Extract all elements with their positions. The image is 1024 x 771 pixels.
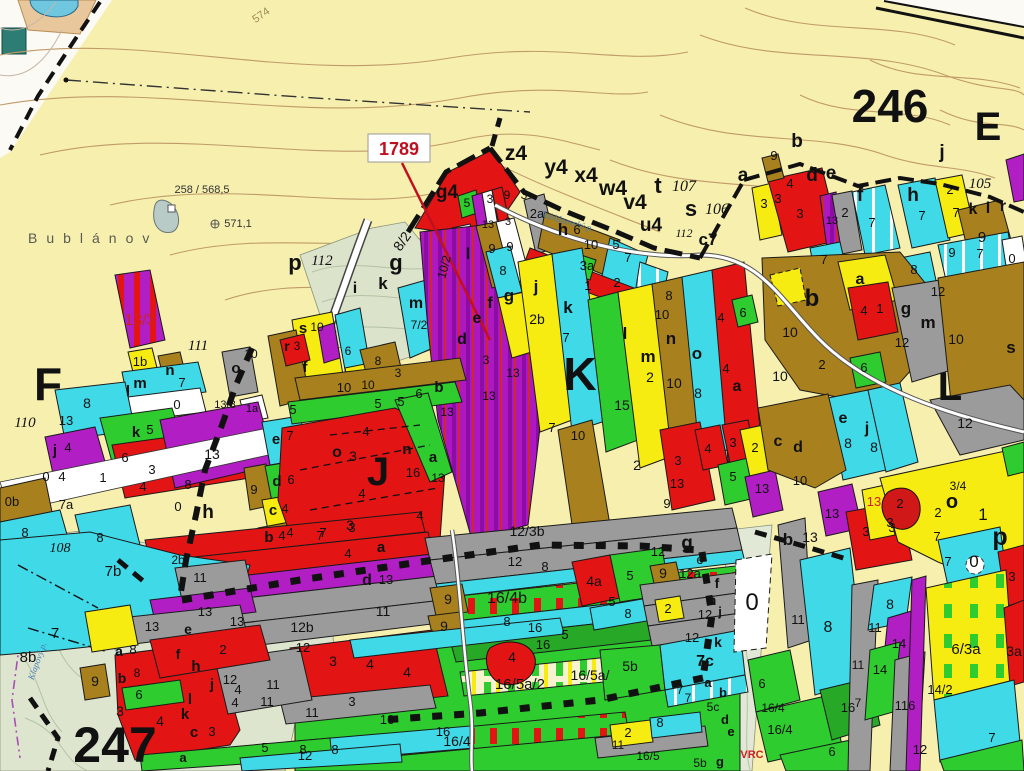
- map-label: 13: [440, 405, 454, 419]
- map-symbol-square: [2, 28, 26, 54]
- map-label: 9: [659, 565, 667, 581]
- map-label: 9: [250, 482, 257, 497]
- place-name: Bublánov: [28, 230, 158, 246]
- map-label: 1: [99, 470, 106, 485]
- map-label: 5: [146, 422, 153, 437]
- map-label: 6: [415, 386, 422, 401]
- map-label: 4: [860, 303, 867, 318]
- map-label: 12: [957, 415, 973, 431]
- map-label: d: [457, 331, 467, 348]
- map-label: 12b: [290, 619, 314, 635]
- map-label: 8: [694, 385, 702, 401]
- map-label: 4: [717, 310, 724, 325]
- map-label: i: [353, 280, 357, 297]
- map-label: 8: [844, 435, 852, 451]
- map-label: 13: [825, 506, 839, 521]
- map-label: 12: [651, 544, 665, 559]
- map-label: n: [666, 329, 676, 348]
- map-label: 3a: [580, 258, 595, 273]
- map-label: 2: [751, 440, 758, 455]
- map-label: 4: [156, 713, 164, 729]
- map-label: g4: [436, 182, 459, 203]
- map-label: 5: [729, 469, 736, 484]
- map-label: 13: [482, 389, 496, 403]
- map-label: 1: [978, 505, 987, 524]
- map-viewport[interactable]: 246E247FJKL1789Bublánov258 / 568,5571,15…: [0, 0, 1024, 771]
- map-label: 13: [204, 446, 220, 462]
- map-label: 7: [868, 215, 875, 230]
- map-label: 4: [722, 361, 729, 376]
- map-label: b: [264, 529, 273, 546]
- map-label: 1b: [133, 354, 147, 369]
- map-label: 10: [244, 347, 258, 361]
- map-label: 2: [219, 642, 226, 657]
- map-label: 7b: [105, 563, 122, 580]
- map-label: j: [717, 604, 722, 619]
- map-label: 5b: [622, 658, 638, 674]
- map-label: l: [623, 324, 628, 343]
- map-label: j: [938, 142, 944, 163]
- map-label: 13: [230, 614, 244, 629]
- map-label: 12: [508, 554, 522, 569]
- map-label: 3: [294, 339, 301, 353]
- map-label: 12a: [679, 566, 701, 581]
- map-label: 0: [173, 397, 180, 412]
- map-label: 4: [58, 469, 65, 484]
- map-label: c: [269, 502, 277, 519]
- map-label: c: [774, 433, 783, 450]
- map-label: 10: [948, 331, 964, 347]
- map-label: 12: [298, 748, 312, 763]
- map-label: 1: [584, 278, 591, 293]
- compartment-letter-K: K: [563, 348, 596, 400]
- map-label: 5b: [693, 756, 707, 770]
- map-label: e: [272, 431, 280, 448]
- map-label: 3: [148, 462, 155, 477]
- map-label: a: [179, 750, 187, 765]
- map-label: 10: [772, 368, 788, 384]
- map-label: 11: [852, 658, 865, 672]
- map-label: 10: [782, 324, 798, 340]
- map-label: 16/5: [636, 749, 660, 763]
- map-label: b: [434, 379, 443, 396]
- map-label: h: [558, 220, 568, 239]
- map-label: j: [533, 277, 539, 296]
- map-label: 5c: [707, 700, 720, 714]
- map-label: 13: [506, 366, 520, 380]
- map-label: a: [733, 378, 742, 395]
- map-label: 3: [349, 448, 357, 464]
- map-label: l: [466, 246, 470, 263]
- map-label: n: [402, 441, 411, 458]
- map-label: 2: [818, 357, 825, 372]
- map-label: 111: [188, 338, 208, 354]
- map-label: g: [504, 286, 514, 305]
- pond-symbol: [168, 205, 175, 212]
- map-label: 6: [135, 687, 142, 702]
- map-label: 2: [664, 601, 671, 616]
- compartment-letter-J: J: [367, 450, 389, 494]
- map-label: 3: [329, 653, 337, 669]
- map-label: 8: [656, 715, 663, 730]
- map-label: 4: [231, 695, 238, 710]
- map-label: 13: [826, 215, 838, 227]
- map-label: 2: [934, 505, 941, 520]
- map-label: 3: [774, 191, 781, 206]
- map-label: 4: [281, 501, 288, 516]
- map-label: 7: [319, 525, 326, 540]
- map-label: 2: [613, 275, 620, 290]
- map-label: r: [1000, 198, 1006, 215]
- map-label: a: [429, 449, 438, 466]
- map-label: 6/3a: [951, 641, 981, 658]
- map-label: 7: [944, 554, 951, 569]
- map-label: y4: [544, 156, 568, 179]
- parcel: [926, 570, 1014, 700]
- map-label: 4: [508, 649, 516, 665]
- map-label: 8: [184, 477, 191, 492]
- map-label: 0: [969, 552, 978, 571]
- map-label: a: [115, 643, 123, 659]
- map-label: 13: [755, 481, 769, 496]
- map-label: 8: [824, 619, 833, 636]
- map-label: 10: [571, 428, 585, 443]
- map-label: h: [202, 502, 214, 523]
- map-label: 2: [946, 182, 953, 197]
- map-label: 14/2: [927, 682, 952, 697]
- map-label: 5: [626, 568, 633, 583]
- map-label: 8: [541, 559, 548, 574]
- map-label: 11: [260, 694, 274, 709]
- map-label: d: [362, 572, 372, 589]
- map-label: j: [52, 442, 57, 459]
- map-label: 10: [584, 237, 598, 252]
- map-label: 2: [896, 496, 903, 511]
- map-label: 116: [895, 698, 916, 713]
- map-label: 12: [296, 640, 310, 655]
- map-label: b: [805, 285, 820, 312]
- map-label: 3: [674, 453, 681, 468]
- map-label: 7: [988, 730, 995, 745]
- map-label: l: [986, 200, 990, 217]
- map-label: 9: [770, 148, 777, 163]
- map-label: h: [907, 185, 919, 206]
- map-label: 2: [646, 369, 654, 385]
- section-number-246: 246: [852, 80, 929, 132]
- map-label: 5: [289, 402, 296, 417]
- map-label: 11: [376, 603, 391, 619]
- map-label: 4a: [586, 573, 602, 589]
- map-label: 4: [344, 546, 351, 561]
- map-label: k: [714, 634, 722, 650]
- map-label: m: [640, 347, 655, 366]
- map-label: 16/4: [761, 701, 785, 715]
- map-label: 10: [337, 380, 351, 395]
- map-label: k: [132, 424, 141, 441]
- map-label: 11: [612, 738, 625, 752]
- map-label: 3: [487, 192, 494, 206]
- map-label: 11: [305, 705, 319, 720]
- map-label: 7: [855, 696, 862, 710]
- map-label: 8: [375, 354, 382, 368]
- map-label: 9: [444, 591, 452, 607]
- map-label: 4: [358, 486, 365, 501]
- map-label: c: [190, 724, 198, 741]
- map-label: 7: [820, 252, 827, 267]
- map-label: 13: [670, 476, 684, 491]
- map-label: 4: [139, 479, 146, 494]
- map-label: b: [719, 685, 727, 700]
- map-label: 7/2: [411, 318, 428, 332]
- map-label: k: [969, 201, 978, 218]
- map-label: a: [738, 165, 749, 186]
- map-label: o: [332, 444, 342, 461]
- map-label: 10: [361, 378, 375, 392]
- map-label: a: [856, 271, 865, 288]
- map-label: 13: [867, 494, 881, 509]
- map-label: VRC: [740, 749, 763, 761]
- map-label: 3: [862, 524, 869, 539]
- map-label: g: [716, 754, 724, 769]
- map-label: 110: [14, 415, 36, 431]
- map-label: 5: [397, 394, 404, 409]
- map-label: 5: [464, 196, 471, 210]
- map-label: 2a: [530, 206, 545, 221]
- map-label: l: [126, 383, 130, 400]
- map-label: 7: [562, 330, 569, 345]
- map-label: 8: [134, 666, 141, 680]
- map-label: 16/4b: [487, 590, 527, 607]
- map-label: 4: [362, 424, 369, 439]
- map-label: 3: [505, 216, 511, 228]
- map-label: 3a: [1006, 643, 1022, 659]
- map-label: 13/3: [124, 312, 155, 329]
- map-label: s: [685, 196, 697, 221]
- map-label: 3: [760, 196, 767, 211]
- map-label: g: [901, 299, 911, 318]
- map-label: 6: [758, 676, 765, 691]
- map-label: b: [118, 670, 127, 686]
- map-label: a: [704, 675, 712, 690]
- map-label: e: [184, 621, 192, 637]
- map-label: 7: [548, 420, 555, 435]
- map-label: 7: [685, 691, 692, 705]
- map-label: 3: [796, 206, 803, 221]
- map-label: 4: [403, 664, 411, 680]
- map-label: 9: [948, 245, 955, 260]
- map-label: b: [791, 131, 803, 152]
- map-label: 571,1: [224, 218, 252, 230]
- map-label: 8: [331, 742, 338, 757]
- map-label: 7: [976, 246, 983, 261]
- map-label: m: [920, 313, 935, 332]
- map-label: 8: [910, 262, 917, 277]
- compartment-letter-F: F: [34, 358, 62, 410]
- map-label: 1a: [246, 403, 259, 415]
- map-label: g: [681, 533, 693, 554]
- map-label: 7: [677, 683, 684, 697]
- map-label: 4: [366, 656, 374, 672]
- map-label: 0: [174, 499, 181, 514]
- map-label: 6: [573, 222, 580, 237]
- map-label: 9: [663, 496, 670, 511]
- map-label: 13: [379, 572, 393, 587]
- map-label: 4: [64, 440, 71, 455]
- map-label: 258 / 568,5: [174, 184, 229, 196]
- map-label: 6: [828, 744, 835, 759]
- map-label: 15: [614, 397, 630, 413]
- map-label: e: [826, 163, 837, 184]
- map-label: 6: [860, 360, 867, 375]
- compartment-letter-E: E: [975, 105, 1002, 149]
- callout-1789: 1789: [379, 139, 419, 159]
- map-label: m: [133, 375, 146, 392]
- map-label: 8: [21, 525, 28, 540]
- map-label: e: [727, 724, 734, 739]
- map-label: 5: [561, 627, 568, 642]
- map-label: 5: [608, 594, 615, 609]
- map-label: 105: [969, 176, 992, 192]
- map-label: 3: [729, 435, 736, 450]
- map-label: 11: [868, 620, 882, 635]
- map-label: 13: [59, 413, 73, 428]
- map-label: 13/8: [214, 399, 235, 411]
- map-label: 3: [395, 366, 402, 380]
- map-label: 7: [933, 529, 940, 544]
- map-label: x4: [574, 164, 598, 187]
- map-label: 11: [791, 612, 805, 627]
- map-label: 2: [624, 725, 631, 740]
- map-label: 16: [528, 620, 542, 635]
- map-label: 0: [745, 589, 758, 616]
- map-label: 13: [802, 529, 818, 545]
- map-label: f: [487, 295, 493, 312]
- map-label: 4: [786, 176, 793, 191]
- map-label: 9: [506, 239, 513, 254]
- map-label: 12: [698, 607, 712, 622]
- map-label: h: [191, 658, 200, 675]
- map-label: 8: [96, 530, 103, 545]
- survey-point: [64, 78, 69, 83]
- map-label: 6: [121, 450, 128, 465]
- map-label: 3: [208, 724, 215, 739]
- map-label: 0: [1008, 251, 1015, 266]
- map-label: 3: [116, 703, 124, 719]
- map-label: 6: [739, 305, 746, 320]
- map-label: 16/4: [443, 733, 470, 749]
- map-label: 16: [841, 700, 855, 715]
- map-label: 14: [873, 662, 887, 677]
- map-label: 9: [91, 673, 99, 689]
- map-label: 13: [145, 619, 159, 634]
- map-label: 8: [665, 288, 672, 303]
- map-label: v4: [623, 191, 647, 214]
- map-label: 10: [793, 473, 807, 488]
- map-label: 0: [42, 469, 49, 484]
- map-label: 10: [310, 320, 324, 334]
- map-label: 16/5a/2: [495, 676, 545, 693]
- map-label: d: [793, 439, 803, 456]
- map-label: p: [992, 523, 1007, 551]
- map-label: b: [783, 530, 793, 549]
- map-label: 7: [51, 625, 59, 642]
- map-label: 3: [483, 353, 490, 367]
- map-label: e: [696, 552, 703, 567]
- map-label: j: [864, 420, 869, 437]
- map-label: 8: [129, 642, 136, 657]
- map-label: 11: [266, 677, 280, 692]
- map-label: s: [1006, 338, 1015, 357]
- map-label: 4: [704, 441, 711, 456]
- map-label: 16: [536, 637, 550, 652]
- map-label: 2b: [171, 553, 185, 567]
- section-number-247: 247: [73, 717, 156, 771]
- map-label: 4: [286, 525, 293, 540]
- map-label: 7a: [59, 497, 74, 512]
- map-label: z4: [505, 142, 528, 165]
- map-label: 8: [886, 596, 894, 612]
- map-label: 8b: [20, 649, 37, 666]
- map-canvas[interactable]: 246E247FJKL1789Bublánov258 / 568,5571,15…: [0, 0, 1024, 771]
- map-label: 11: [193, 570, 207, 585]
- map-label: 12/3b: [509, 523, 544, 539]
- map-label: e: [473, 310, 482, 327]
- map-label: 107: [672, 178, 697, 195]
- map-label: a: [377, 539, 386, 556]
- map-label: 5: [374, 396, 381, 411]
- map-label: 12: [895, 335, 909, 350]
- map-label: 2b: [529, 311, 545, 327]
- map-label: o: [692, 344, 702, 363]
- map-label: 6: [345, 344, 352, 358]
- map-label: 2: [633, 457, 641, 473]
- map-label: n: [165, 362, 174, 379]
- map-label: 12: [685, 630, 699, 645]
- map-label: 2: [841, 205, 848, 220]
- map-label: o: [946, 491, 958, 513]
- map-label: 16: [406, 465, 420, 480]
- map-label: 8: [503, 614, 510, 629]
- map-label: 3: [521, 188, 528, 202]
- map-label: 13: [482, 219, 494, 231]
- map-label: n: [708, 592, 717, 608]
- map-label: k: [181, 706, 190, 723]
- map-label: d: [806, 165, 818, 186]
- map-label: m: [409, 295, 423, 312]
- map-label: r: [284, 338, 290, 354]
- map-label: 6: [287, 472, 294, 487]
- map-label: 9: [978, 229, 986, 246]
- map-label: u4: [640, 215, 663, 236]
- map-label: 1: [876, 301, 883, 316]
- map-label: 8: [870, 439, 878, 455]
- map-label: k: [563, 298, 573, 317]
- map-label: 5: [261, 740, 268, 755]
- map-label: f: [176, 646, 181, 662]
- map-label: 108: [50, 541, 71, 556]
- map-label: 8: [624, 606, 631, 621]
- map-label: 5: [612, 237, 619, 252]
- map-label: 12: [931, 284, 945, 299]
- map-label: 8: [83, 395, 91, 411]
- compartment-letter-L: L: [938, 365, 962, 409]
- map-label: s: [299, 320, 307, 337]
- map-label: o: [231, 360, 240, 377]
- map-label: 16/4: [767, 722, 792, 737]
- map-label: 10: [655, 307, 669, 322]
- map-label: 12: [913, 742, 927, 757]
- map-label: 3: [348, 520, 355, 535]
